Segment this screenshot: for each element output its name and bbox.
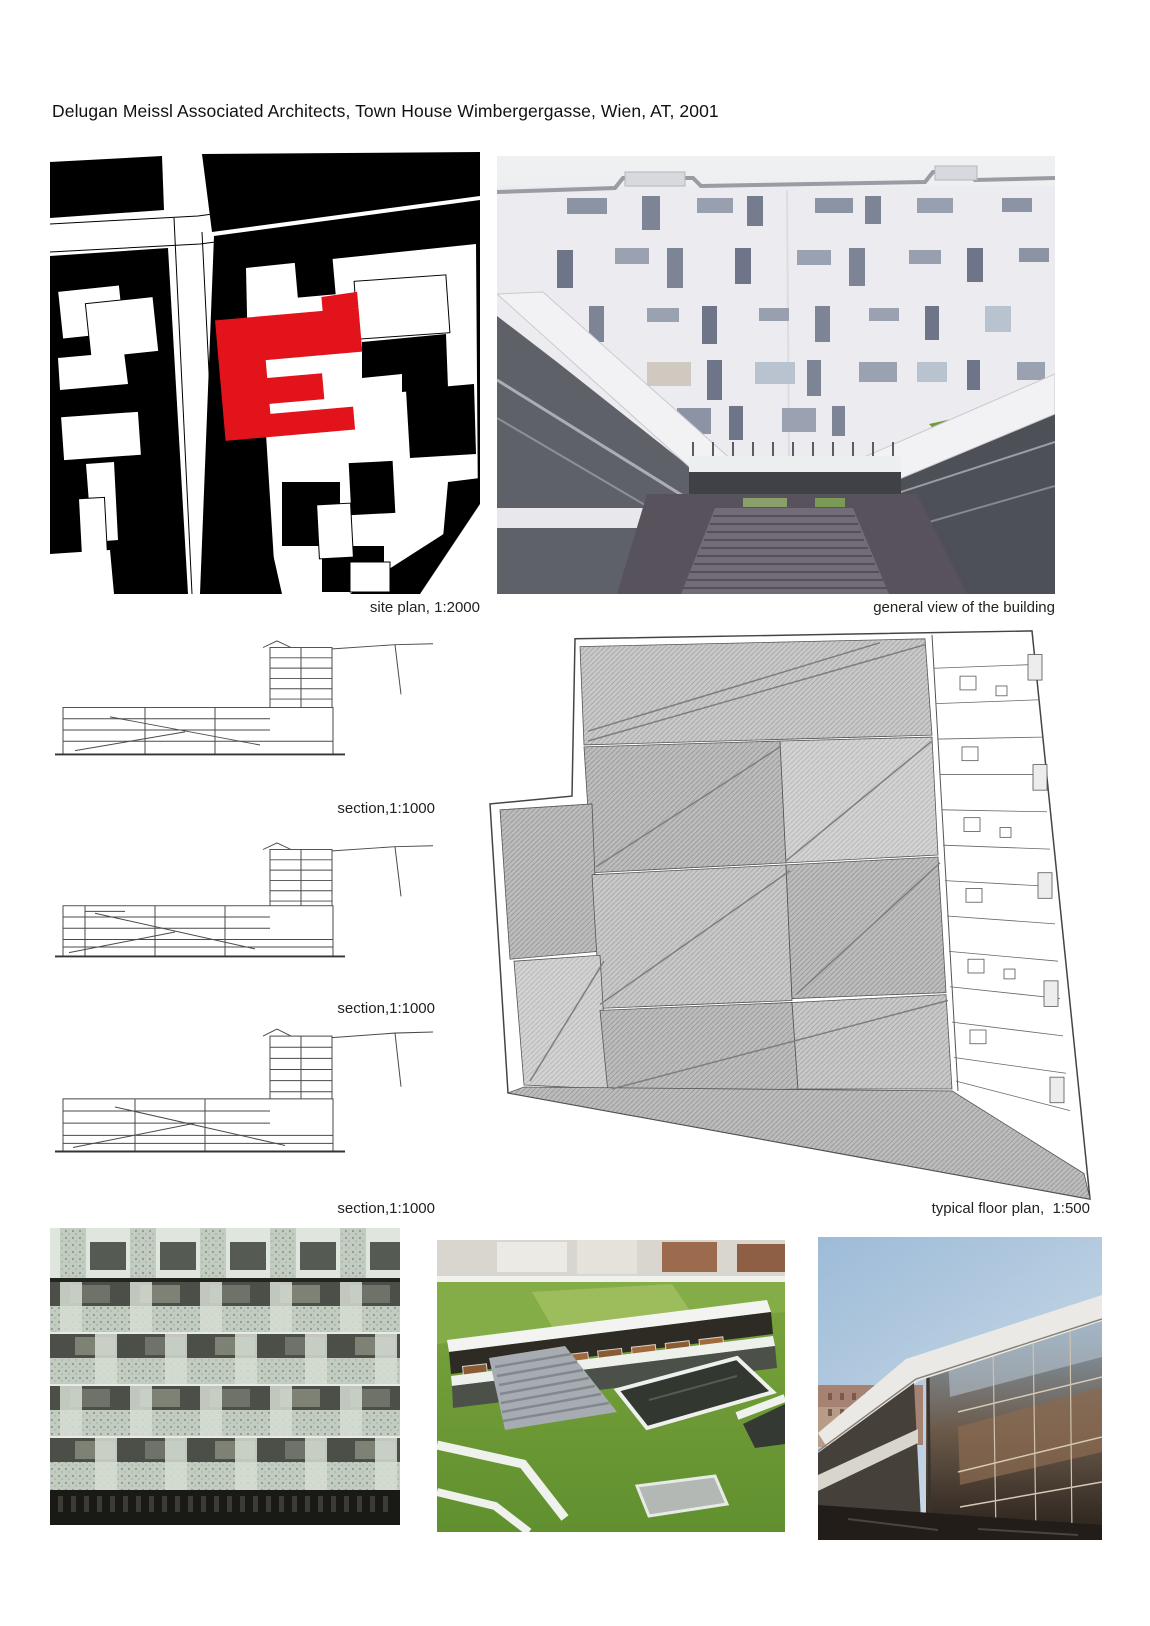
- site-plan-figure: [50, 152, 480, 594]
- page-title: Delugan Meissl Associated Architects, To…: [52, 101, 719, 122]
- general-view-photo: [497, 156, 1055, 594]
- section-2-image: [55, 842, 435, 992]
- glass-facade-image: [818, 1237, 1102, 1540]
- green-roof-photo: [437, 1240, 785, 1532]
- green-roof-image: [437, 1240, 785, 1532]
- facade-detail-image: [50, 1228, 400, 1525]
- section-drawing-1: [55, 640, 435, 790]
- section-3-caption: section,1:1000: [55, 1200, 435, 1217]
- floor-plan-caption: typical floor plan, 1:500: [480, 1200, 1090, 1217]
- section-2-caption: section,1:1000: [55, 1000, 435, 1017]
- section-3-image: [55, 1028, 435, 1190]
- presentation-sheet: Delugan Meissl Associated Architects, To…: [0, 0, 1150, 1626]
- general-view-caption: general view of the building: [497, 599, 1055, 616]
- glass-facade-photo: [818, 1237, 1102, 1540]
- general-view-image: [497, 156, 1055, 594]
- section-drawing-3: [55, 1028, 435, 1190]
- facade-detail-photo: [50, 1228, 400, 1525]
- section-drawing-2: [55, 842, 435, 992]
- floor-plan-figure: [480, 627, 1100, 1202]
- site-plan-caption: site plan, 1:2000: [50, 599, 480, 616]
- section-1-image: [55, 640, 435, 790]
- floor-plan-drawing: [480, 627, 1100, 1202]
- section-1-caption: section,1:1000: [55, 800, 435, 817]
- courtyard-stairs: [681, 508, 889, 594]
- site-plan-drawing: [50, 152, 480, 594]
